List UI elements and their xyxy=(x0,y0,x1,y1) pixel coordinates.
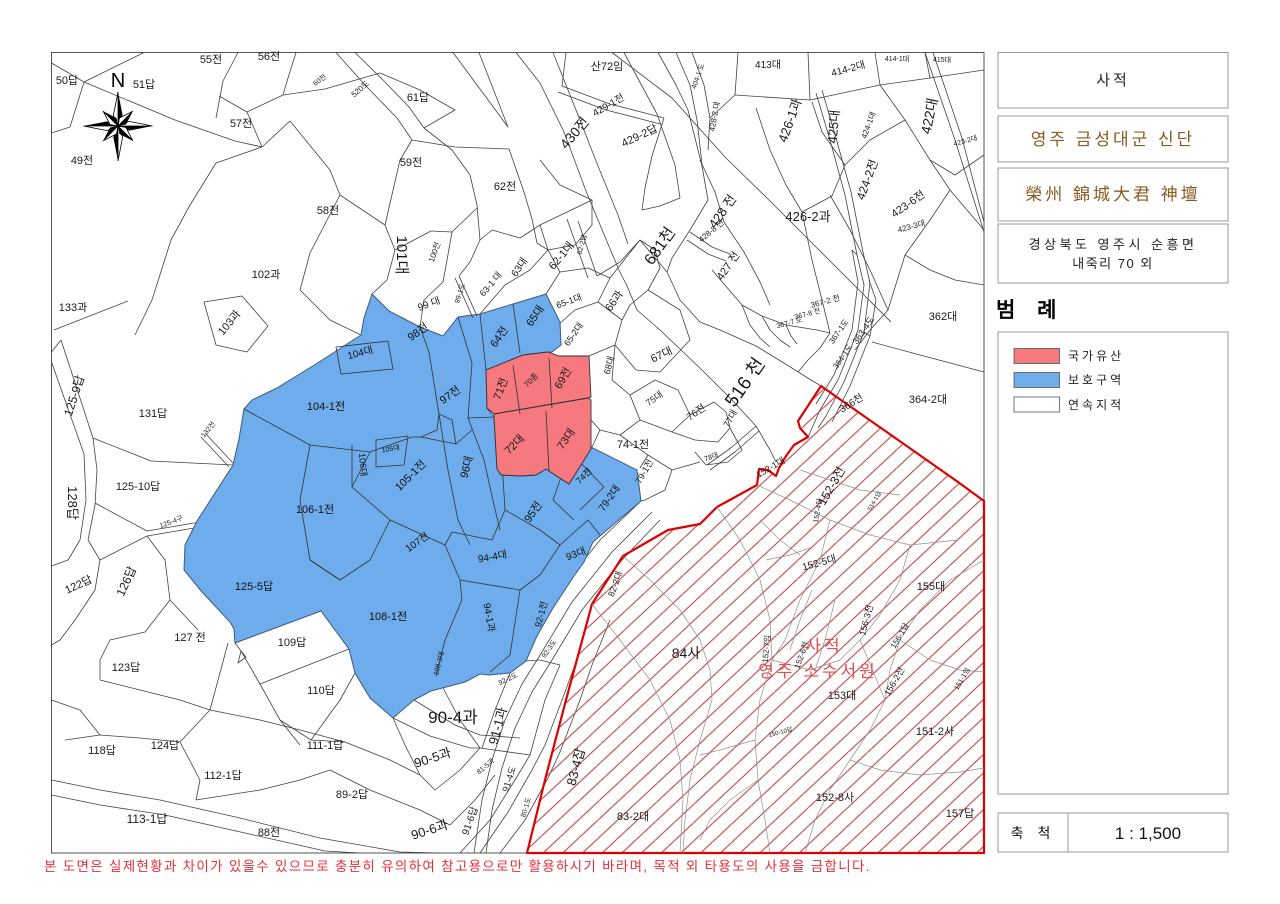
svg-text:426-2과: 426-2과 xyxy=(785,209,830,224)
svg-text:연속지적: 연속지적 xyxy=(1068,398,1124,412)
svg-text:110답: 110답 xyxy=(307,684,335,697)
svg-text:49전: 49전 xyxy=(71,154,93,167)
svg-text:362대: 362대 xyxy=(929,310,957,323)
svg-text:89-2답: 89-2답 xyxy=(336,788,368,801)
svg-text:국가유산: 국가유산 xyxy=(1068,349,1124,363)
svg-text:124답: 124답 xyxy=(151,739,179,752)
svg-text:62전: 62전 xyxy=(494,180,516,193)
svg-text:55전: 55전 xyxy=(200,53,222,66)
svg-text:축 척: 축 척 xyxy=(1011,825,1056,841)
svg-text:415대: 415대 xyxy=(933,56,951,64)
svg-text:50답: 50답 xyxy=(56,74,78,87)
svg-text:413대: 413대 xyxy=(755,59,781,71)
svg-text:157답: 157답 xyxy=(946,807,974,820)
svg-text:113-1답: 113-1답 xyxy=(127,812,168,826)
svg-text:112-1답: 112-1답 xyxy=(204,769,241,782)
svg-text:128답: 128답 xyxy=(65,486,80,520)
svg-text:범 례: 범 례 xyxy=(996,299,1064,322)
svg-text:151-2사: 151-2사 xyxy=(916,725,954,738)
svg-text:118답: 118답 xyxy=(88,744,116,757)
svg-text:56전: 56전 xyxy=(258,50,280,63)
svg-text:57전: 57전 xyxy=(230,117,252,130)
svg-text:내죽리 70 외: 내죽리 70 외 xyxy=(1072,256,1154,271)
svg-text:125-5답: 125-5답 xyxy=(235,580,273,593)
svg-text:1 : 1,500: 1 : 1,500 xyxy=(1115,824,1181,843)
svg-text:영주 소수서원: 영주 소수서원 xyxy=(758,662,878,681)
svg-text:106-1전: 106-1전 xyxy=(296,503,334,516)
svg-text:사적: 사적 xyxy=(805,637,842,656)
svg-text:131답: 131답 xyxy=(139,407,167,420)
svg-text:51답: 51답 xyxy=(133,78,155,91)
svg-text:153대: 153대 xyxy=(828,689,856,702)
svg-text:영주 금성대군 신단: 영주 금성대군 신단 xyxy=(1031,130,1196,149)
svg-text:108-1전: 108-1전 xyxy=(369,610,407,623)
svg-text:364-2대: 364-2대 xyxy=(909,393,947,406)
svg-text:102과: 102과 xyxy=(252,268,280,281)
svg-text:152-8사: 152-8사 xyxy=(816,791,854,804)
svg-text:61답: 61답 xyxy=(407,91,429,104)
svg-text:사적: 사적 xyxy=(1096,72,1130,89)
svg-text:106대: 106대 xyxy=(357,453,369,477)
svg-text:90-4과: 90-4과 xyxy=(428,708,478,727)
svg-text:본 도면은 실제현황과 차이가 있을수 있으므로 충분히 유: 본 도면은 실제현황과 차이가 있을수 있으므로 충분히 유의하여 참고용으로만… xyxy=(44,859,871,874)
svg-text:74-1전: 74-1전 xyxy=(617,438,649,451)
svg-text:125-10답: 125-10답 xyxy=(116,480,160,493)
svg-text:104-1전: 104-1전 xyxy=(307,400,345,413)
svg-text:경상북도 영주시 순흥면: 경상북도 영주시 순흥면 xyxy=(1029,237,1198,252)
svg-text:58전: 58전 xyxy=(317,204,339,217)
svg-text:155대: 155대 xyxy=(917,580,945,593)
svg-text:127 전: 127 전 xyxy=(174,631,206,644)
svg-text:84사: 84사 xyxy=(672,645,701,661)
svg-text:425대: 425대 xyxy=(825,109,843,144)
svg-text:123답: 123답 xyxy=(112,661,140,674)
svg-text:101대: 101대 xyxy=(393,236,410,275)
svg-text:榮州 錦城大君 神壇: 榮州 錦城大君 神壇 xyxy=(1025,185,1200,204)
svg-text:414-1대: 414-1대 xyxy=(885,55,909,63)
svg-text:59전: 59전 xyxy=(400,156,422,169)
svg-text:산72임: 산72임 xyxy=(591,60,623,73)
svg-text:N: N xyxy=(111,70,125,92)
svg-text:88전: 88전 xyxy=(258,826,280,839)
svg-text:83-2대: 83-2대 xyxy=(617,810,649,823)
svg-text:109답: 109답 xyxy=(278,636,306,649)
svg-text:133과: 133과 xyxy=(59,301,87,314)
svg-text:111-1답: 111-1답 xyxy=(307,739,344,752)
svg-text:보호구역: 보호구역 xyxy=(1068,373,1124,387)
